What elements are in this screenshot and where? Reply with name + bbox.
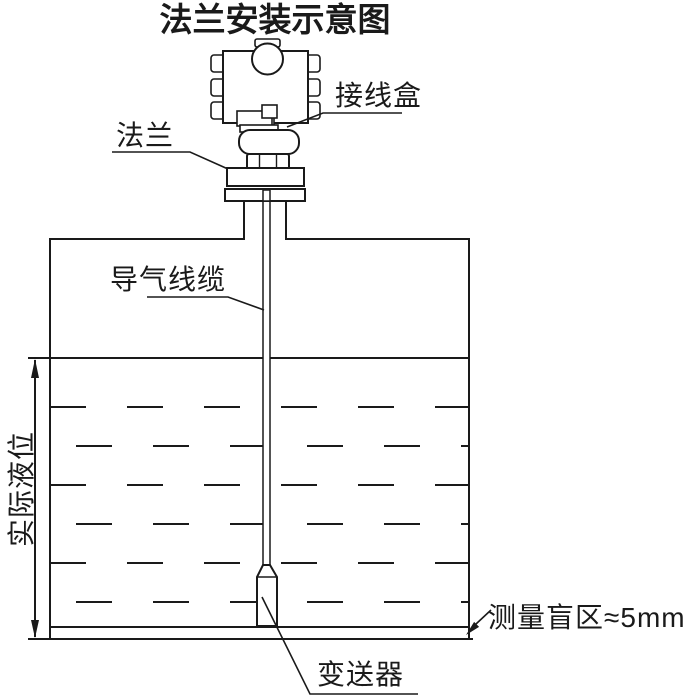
diagram-canvas: 法兰安装示意图 bbox=[0, 0, 700, 700]
transmitter-callout: 变送器 bbox=[262, 597, 418, 694]
flange-label: 法兰 bbox=[116, 120, 174, 151]
probe-transmitter bbox=[257, 565, 277, 626]
flange-callout: 法兰 bbox=[112, 120, 228, 169]
diagram-title: 法兰安装示意图 bbox=[160, 1, 391, 38]
air-guide-cable bbox=[263, 189, 270, 572]
tank bbox=[28, 238, 473, 640]
dimension-arrow-up bbox=[31, 359, 39, 378]
dimension-arrow-down bbox=[31, 620, 39, 638]
blind-zone-label: 测量盲区≈5mm bbox=[488, 602, 686, 633]
air-cable-label: 导气线缆 bbox=[110, 264, 226, 295]
hex-nut bbox=[247, 154, 289, 169]
junction-box-label: 接线盒 bbox=[335, 80, 422, 111]
probe-body bbox=[257, 565, 277, 626]
blind-zone-callout: 测量盲区≈5mm bbox=[466, 602, 686, 635]
neck-barrel bbox=[239, 130, 299, 154]
flange-installation-diagram: 法兰安装示意图 bbox=[0, 0, 700, 700]
air-cable-callout: 导气线缆 bbox=[110, 264, 264, 310]
transmitter-head bbox=[211, 39, 320, 169]
cable-through-flange bbox=[263, 190, 270, 201]
display-cover bbox=[252, 44, 283, 75]
flange-top-plate bbox=[227, 168, 304, 186]
liquid bbox=[28, 358, 469, 602]
air-cable-leader bbox=[147, 297, 264, 310]
actual-level-label: 实际液位 bbox=[6, 431, 37, 547]
transmitter-label: 变送器 bbox=[317, 659, 404, 690]
flange-leader bbox=[112, 152, 228, 169]
terminal-cap bbox=[262, 105, 277, 118]
